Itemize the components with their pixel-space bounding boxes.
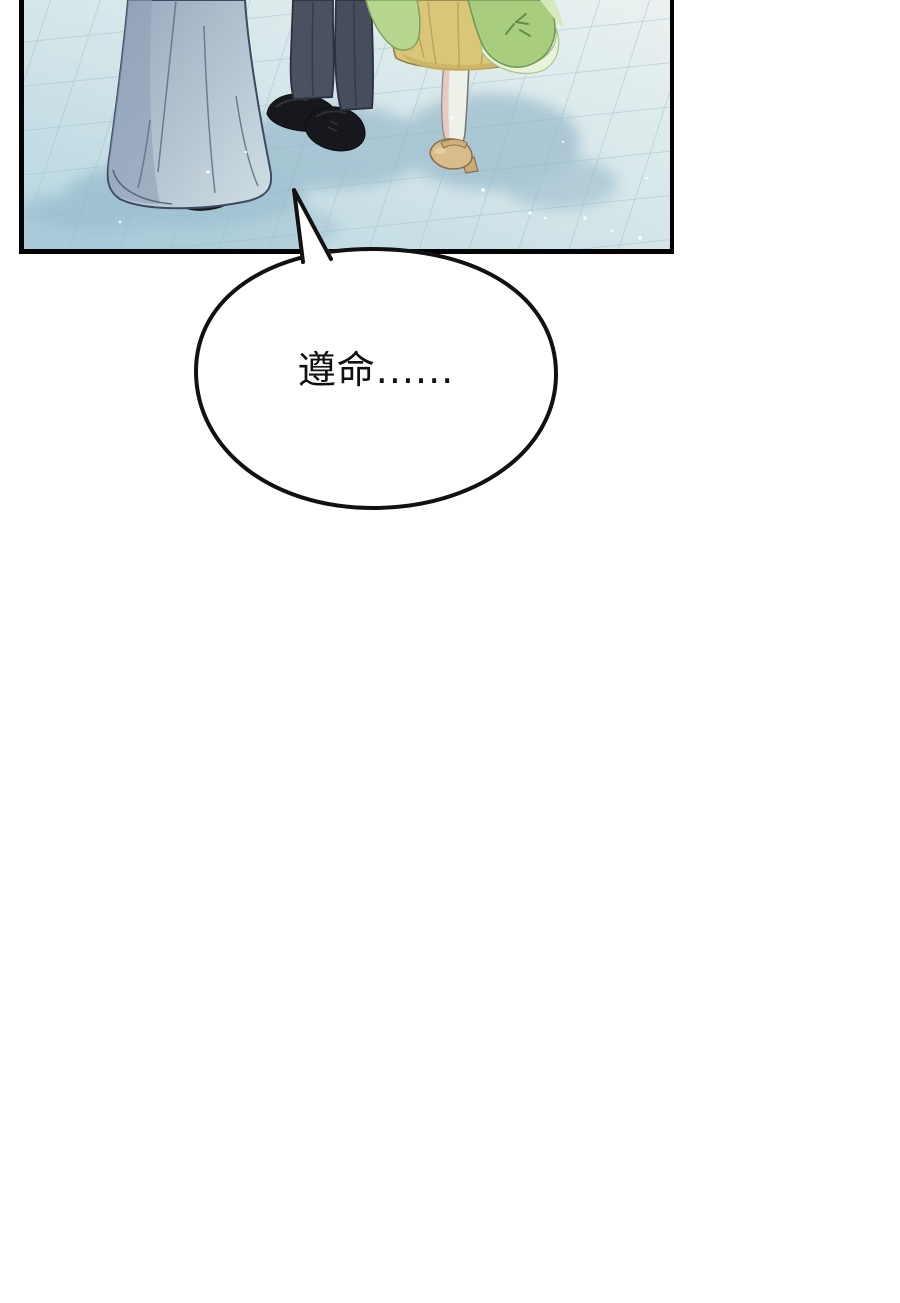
comic-page: 遵命...... <box>0 0 900 1303</box>
bubble-text: 遵命...... <box>251 350 501 392</box>
panel-artwork <box>24 0 670 249</box>
comic-panel <box>19 0 674 254</box>
gown-character <box>108 0 271 213</box>
